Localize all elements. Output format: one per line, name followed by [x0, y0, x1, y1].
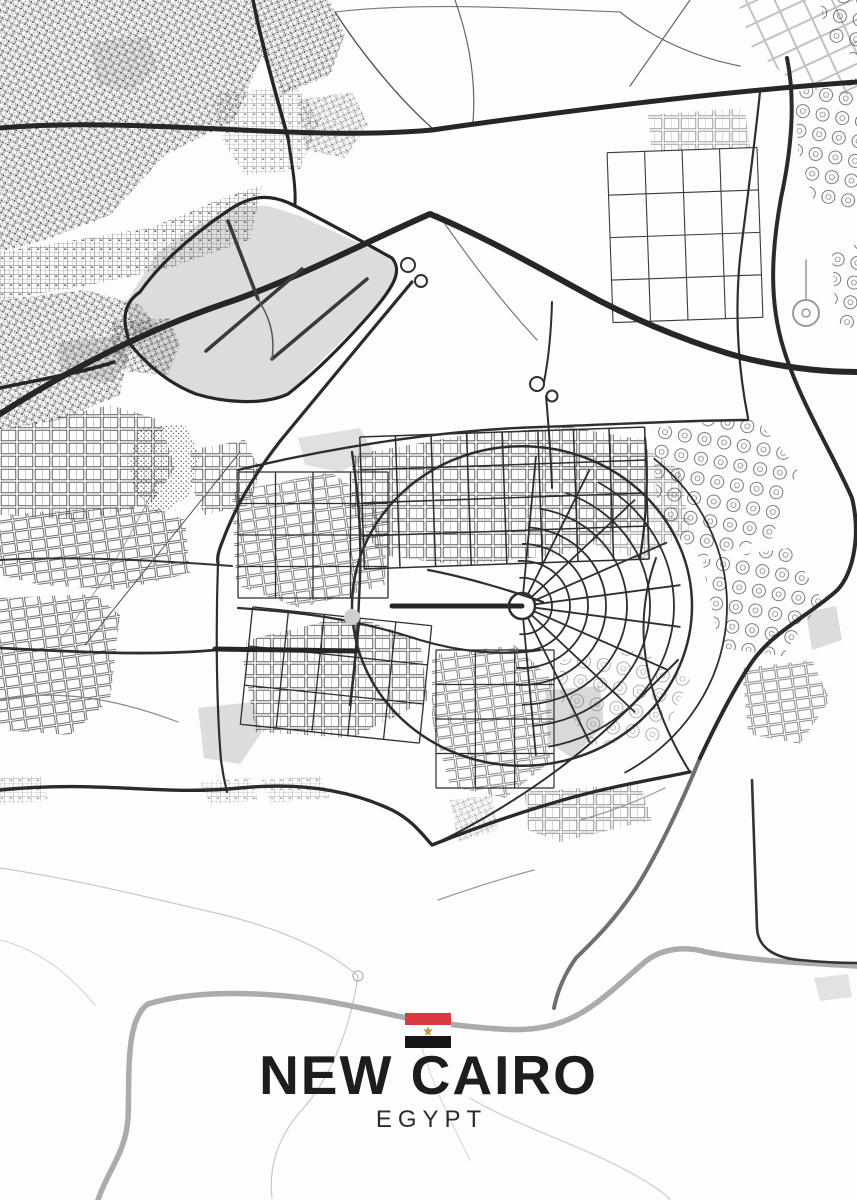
road-top-4	[620, 12, 740, 66]
interchange-2	[415, 275, 427, 287]
wadi-3	[470, 1098, 670, 1200]
pond	[344, 609, 360, 625]
interchange-1	[401, 258, 415, 272]
gray-patch-southeast	[814, 974, 852, 1001]
south-vertical	[752, 780, 857, 963]
nasr-city-blocks-2	[0, 505, 190, 590]
loop-2	[547, 391, 558, 402]
south-road-1	[438, 870, 534, 900]
road-mid-thin	[438, 214, 537, 340]
feeder-north-upper	[544, 302, 552, 382]
balloon-road-inner	[802, 309, 810, 317]
industrial-north	[648, 108, 750, 152]
road-top-5	[630, 0, 690, 86]
regional-ring-road	[98, 949, 857, 1200]
loop-1	[530, 377, 544, 391]
road-top-3	[455, 0, 474, 122]
east-blocks	[742, 660, 830, 744]
west-axis-bar	[215, 649, 356, 651]
suburb-curvy-ne-2	[832, 244, 857, 330]
wadi-5	[420, 1040, 470, 1160]
suburb-curvy-ne-1	[795, 78, 857, 212]
north-settlement-2	[298, 92, 368, 158]
parcel-grid-northeast	[607, 147, 763, 322]
wadi-1	[0, 868, 358, 976]
left-edge-blocks	[0, 594, 120, 735]
road-top-1	[335, 7, 620, 12]
east-curvy-2	[702, 548, 822, 656]
balloon-road	[793, 300, 819, 326]
wadi-2	[271, 976, 358, 1198]
map-canvas	[0, 0, 857, 1200]
wadi-4	[0, 940, 95, 1005]
map-poster: NEW CAIRO EGYPT	[0, 0, 857, 1200]
